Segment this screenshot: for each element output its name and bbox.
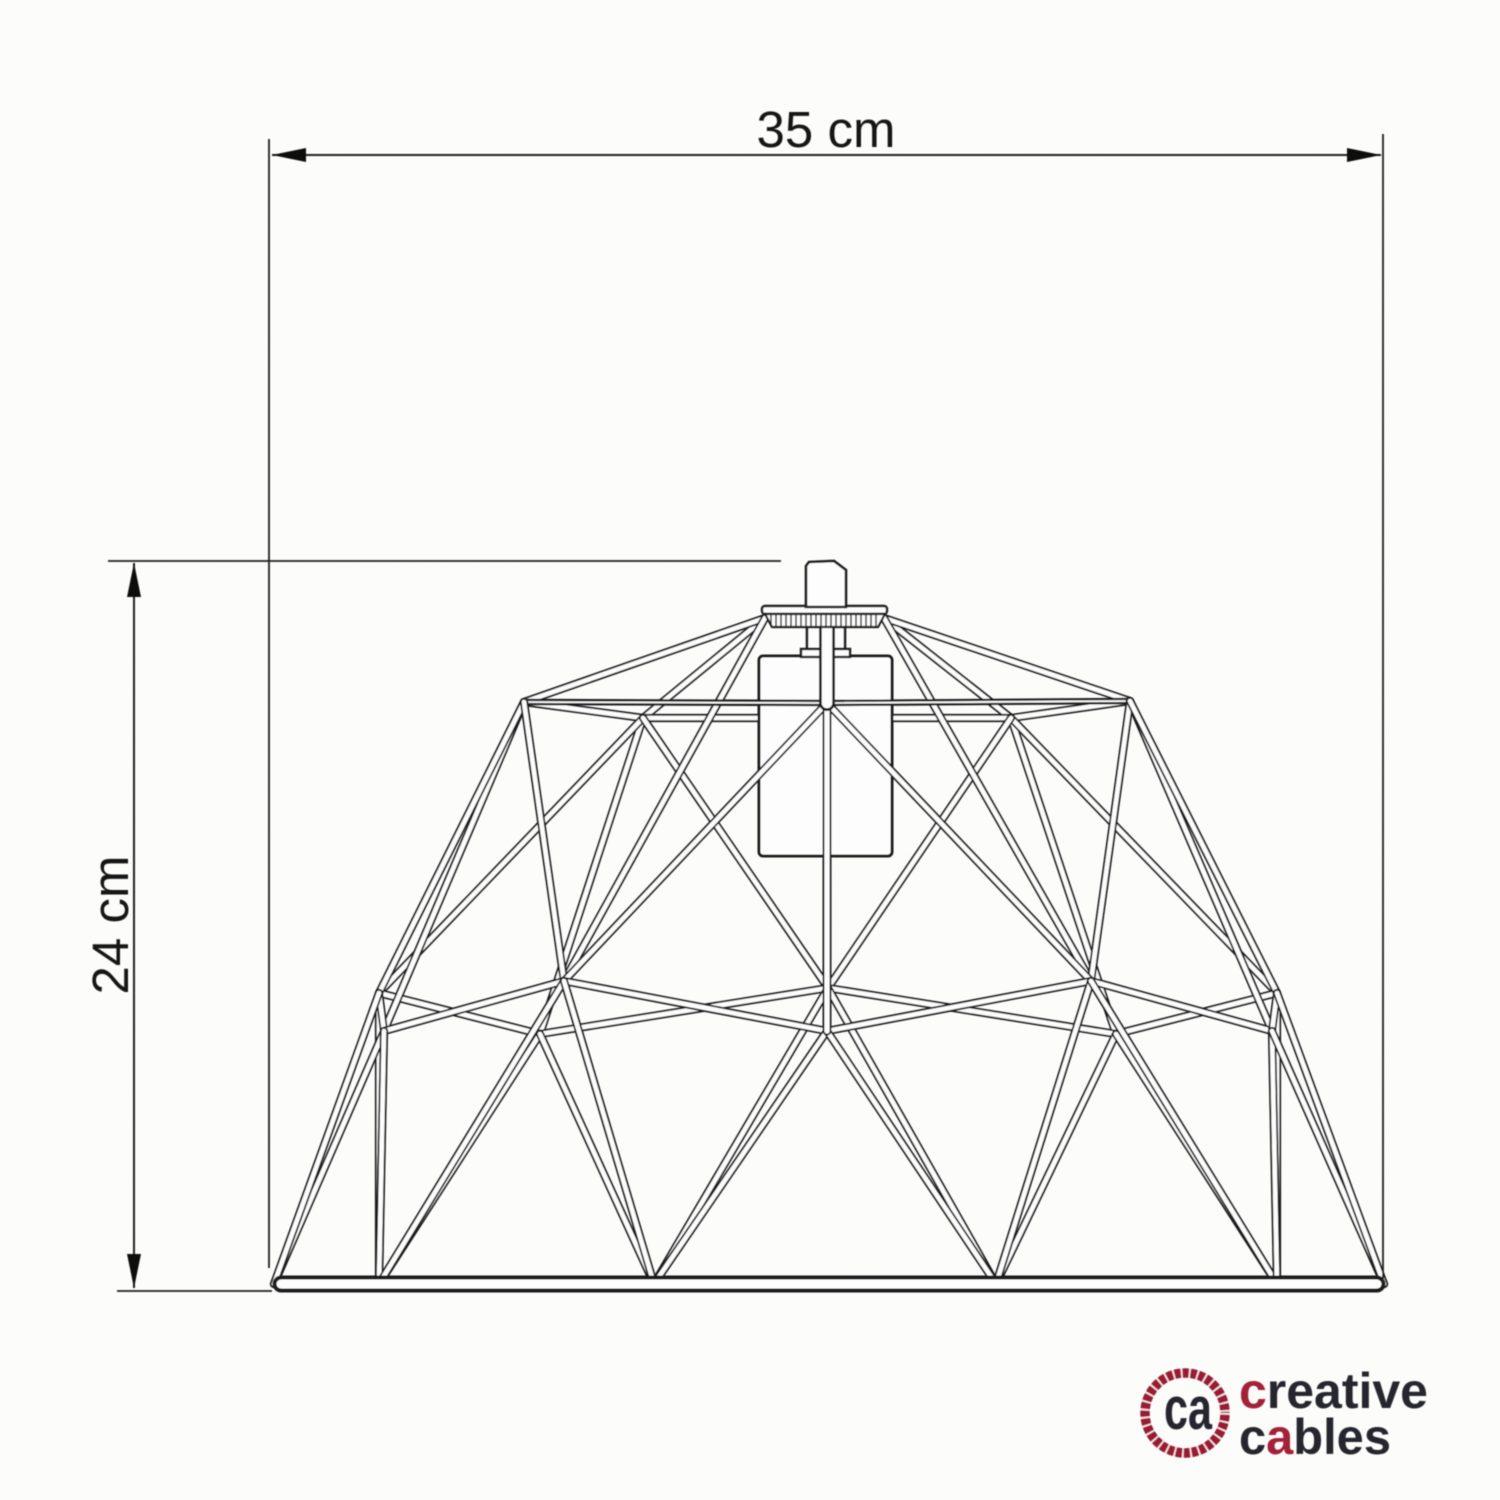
svg-text:cables: cables <box>1239 1409 1391 1465</box>
svg-text:35 cm: 35 cm <box>757 101 896 158</box>
svg-text:ca: ca <box>1164 1375 1212 1442</box>
svg-text:24 cm: 24 cm <box>82 856 139 995</box>
